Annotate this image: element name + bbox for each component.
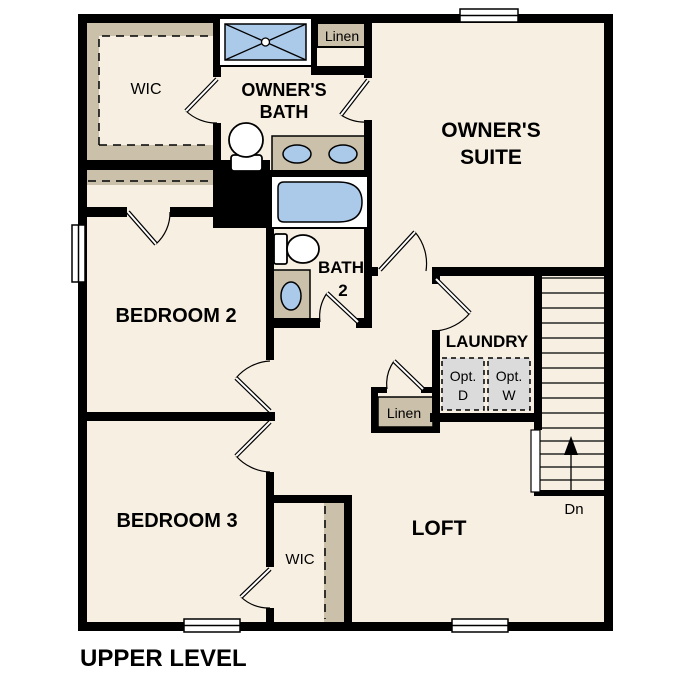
room-label-bath2-line2: 2 — [338, 281, 347, 300]
room-label-loft: LOFT — [412, 517, 467, 540]
bedroom2-closet-shelf — [86, 170, 213, 185]
label-opt-dryer-line2: D — [458, 387, 468, 403]
label-opt-dryer-line1: Opt. — [450, 368, 476, 384]
room-label-linen-upper: Linen — [325, 28, 359, 44]
room-label-owners-wic: WIC — [130, 81, 161, 98]
room-label-bedroom3-wic: WIC — [285, 551, 314, 568]
page-title: UPPER LEVEL — [80, 645, 247, 672]
stairs-handrail — [531, 430, 540, 492]
room-label-owners-suite-line1: OWNER'S — [441, 119, 541, 142]
floor-plan-page: WIC OWNER'S BATH Linen OWNER'S SUITE BED… — [0, 0, 687, 687]
bedroom3-wic-shelf — [324, 503, 344, 622]
room-label-bedroom3: BEDROOM 3 — [116, 510, 237, 532]
shower-fixture — [219, 18, 312, 66]
owners-vanity-sink-left — [283, 145, 311, 163]
owners-vanity-sink-right — [329, 145, 357, 163]
room-label-owners-bath-line2: BATH — [260, 102, 309, 122]
room-label-bath2-line1: BATH — [318, 258, 364, 277]
bath2-sink — [281, 282, 301, 310]
bath2-toilet — [274, 234, 319, 264]
room-label-bedroom2: BEDROOM 2 — [115, 305, 236, 327]
label-opt-washer-line2: W — [502, 387, 516, 403]
bathtub-fixture — [271, 176, 368, 228]
floor-plan-image: WIC OWNER'S BATH Linen OWNER'S SUITE BED… — [0, 0, 687, 687]
room-label-laundry: LAUNDRY — [446, 332, 529, 351]
shower-drain — [262, 38, 270, 46]
owners-bath-toilet — [229, 123, 263, 171]
room-label-owners-suite-line2: SUITE — [460, 146, 522, 169]
stairs-down-label: Dn — [564, 501, 583, 518]
room-label-linen-lower: Linen — [387, 405, 421, 421]
room-label-owners-bath-line1: OWNER'S — [241, 80, 326, 100]
label-opt-washer-line1: Opt. — [496, 368, 522, 384]
